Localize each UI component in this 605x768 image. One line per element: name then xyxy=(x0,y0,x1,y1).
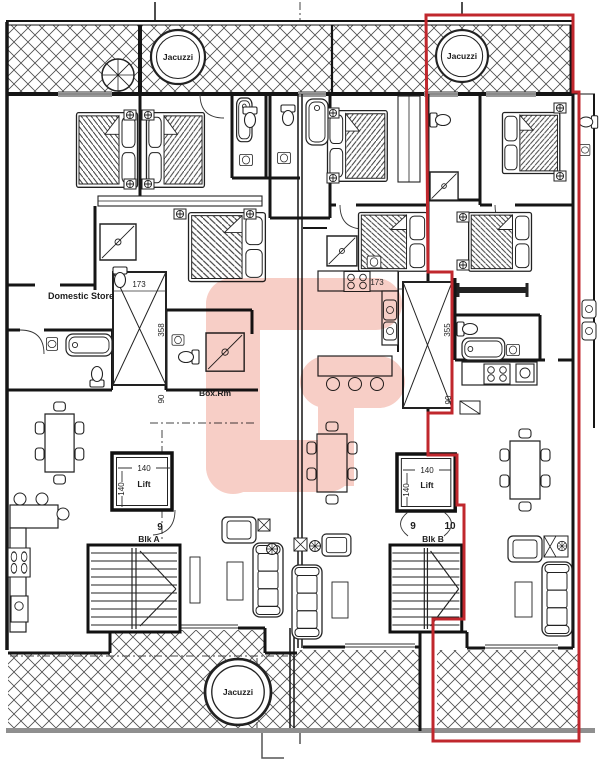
washbasin xyxy=(367,256,381,268)
bed-unit-c-1 xyxy=(502,113,559,174)
dim-shaft-b-length: 355 xyxy=(443,323,452,337)
lift-a-label: Lift xyxy=(137,479,150,489)
terrace-base-line xyxy=(6,728,595,733)
dim-shaft-a-corridor: 90 xyxy=(157,394,166,403)
jacuzzi-bottom-label: Jacuzzi xyxy=(223,687,253,697)
bed-unit-a-2 xyxy=(146,113,204,188)
toilet xyxy=(281,105,295,126)
door-number-b-right: 10 xyxy=(444,521,456,532)
block-a-label: Blk A xyxy=(138,534,159,544)
toilet xyxy=(579,116,597,129)
bathtub xyxy=(462,338,505,360)
bed-unit-c-2 xyxy=(469,213,532,272)
dim-lift-b-width: 140 xyxy=(420,466,434,475)
toilet xyxy=(457,322,478,336)
bathtub xyxy=(66,334,112,356)
dim-shaft-a-width: 173 xyxy=(132,280,146,289)
dim-lift-b-depth: 140 xyxy=(402,483,411,497)
shower xyxy=(430,172,458,200)
washbasin xyxy=(278,152,291,163)
dim-lift-a-width: 140 xyxy=(137,464,151,473)
shower xyxy=(100,224,136,260)
dim-shaft-b-corridor: 90 xyxy=(444,395,453,404)
door-number-b-left: 9 xyxy=(410,521,416,532)
block-b-label: Blk B xyxy=(422,534,444,544)
washbasin xyxy=(172,335,184,346)
washbasin xyxy=(507,344,520,355)
dim-shaft-a-length: 358 xyxy=(157,323,166,337)
dim-lift-a-depth: 140 xyxy=(117,482,126,496)
jacuzzi-top-right-label: Jacuzzi xyxy=(447,51,477,61)
floor-plan-page: Jacuzzi Jacuzzi Jacuzzi Domestic Store B… xyxy=(0,0,605,768)
bed-unit-a-1 xyxy=(77,113,138,188)
toilet xyxy=(113,267,127,288)
domestic-store-label: Domestic Store xyxy=(48,291,114,301)
box-room-label: Box.Rm xyxy=(199,388,232,398)
toilet xyxy=(90,367,104,388)
washbasin xyxy=(580,144,590,155)
jacuzzi-top-left-label: Jacuzzi xyxy=(163,52,193,62)
shaft-b xyxy=(403,282,452,408)
bathtub xyxy=(306,99,328,145)
bed-unit-b-1 xyxy=(327,111,387,182)
bed-unit-a-master xyxy=(189,213,266,282)
washbasin xyxy=(240,154,253,165)
lift-b-label: Lift xyxy=(420,480,433,490)
toilet xyxy=(179,350,200,364)
floor-plan: Jacuzzi Jacuzzi Jacuzzi Domestic Store B… xyxy=(0,0,605,768)
toilet xyxy=(430,113,451,127)
shower xyxy=(327,236,357,266)
round-table xyxy=(102,59,134,91)
staircase-block-a xyxy=(88,545,180,632)
toilet xyxy=(243,107,257,128)
washbasin xyxy=(46,338,57,351)
dim-shaft-b-width: 173 xyxy=(370,278,384,287)
door-number-a: 9 xyxy=(157,522,163,533)
